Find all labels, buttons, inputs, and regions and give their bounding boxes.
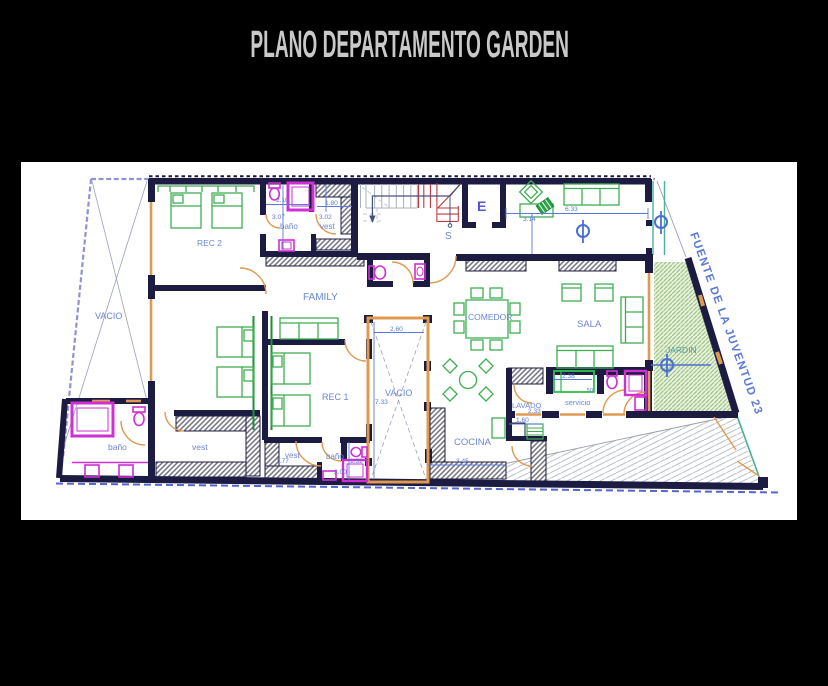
svg-text:SALA: SALA <box>577 319 602 330</box>
svg-text:2.10: 2.10 <box>276 197 289 204</box>
svg-text:3.07: 3.07 <box>272 214 285 221</box>
svg-text:3.14: 3.14 <box>523 216 536 223</box>
svg-text:COMEDOR: COMEDOR <box>468 312 512 322</box>
svg-text:vest: vest <box>192 442 208 452</box>
svg-text:6.33: 6.33 <box>565 206 578 213</box>
svg-text:7.33: 7.33 <box>375 399 388 406</box>
svg-text:1.80: 1.80 <box>325 200 338 207</box>
svg-text:3.45: 3.45 <box>456 458 469 465</box>
svg-text:vest: vest <box>285 451 300 460</box>
svg-text:servicio: servicio <box>565 398 590 407</box>
svg-text:REC 1: REC 1 <box>322 392 349 402</box>
svg-text:FAMILY: FAMILY <box>303 292 338 303</box>
svg-text:LAVADO: LAVADO <box>512 401 541 410</box>
svg-text:baño: baño <box>326 452 344 461</box>
svg-text:JARDIN: JARDIN <box>666 345 697 355</box>
svg-text:baño: baño <box>280 222 298 231</box>
svg-text:vest: vest <box>320 222 335 231</box>
svg-text:VACIO: VACIO <box>385 388 412 398</box>
svg-text:E: E <box>477 198 486 214</box>
svg-text:1.60: 1.60 <box>516 417 529 424</box>
svg-text:baño: baño <box>108 442 127 452</box>
svg-text:2.00: 2.00 <box>334 469 347 476</box>
svg-text:2.38: 2.38 <box>562 373 575 380</box>
svg-text:VACIO: VACIO <box>95 311 122 321</box>
svg-text:COCINA: COCINA <box>454 437 492 448</box>
svg-text:.50: .50 <box>585 388 593 394</box>
svg-text:REC 2: REC 2 <box>197 238 222 248</box>
svg-text:2.60: 2.60 <box>390 326 403 333</box>
svg-text:1.52: 1.52 <box>350 458 363 465</box>
svg-text:S: S <box>445 231 452 242</box>
svg-text:3.02: 3.02 <box>319 214 332 221</box>
